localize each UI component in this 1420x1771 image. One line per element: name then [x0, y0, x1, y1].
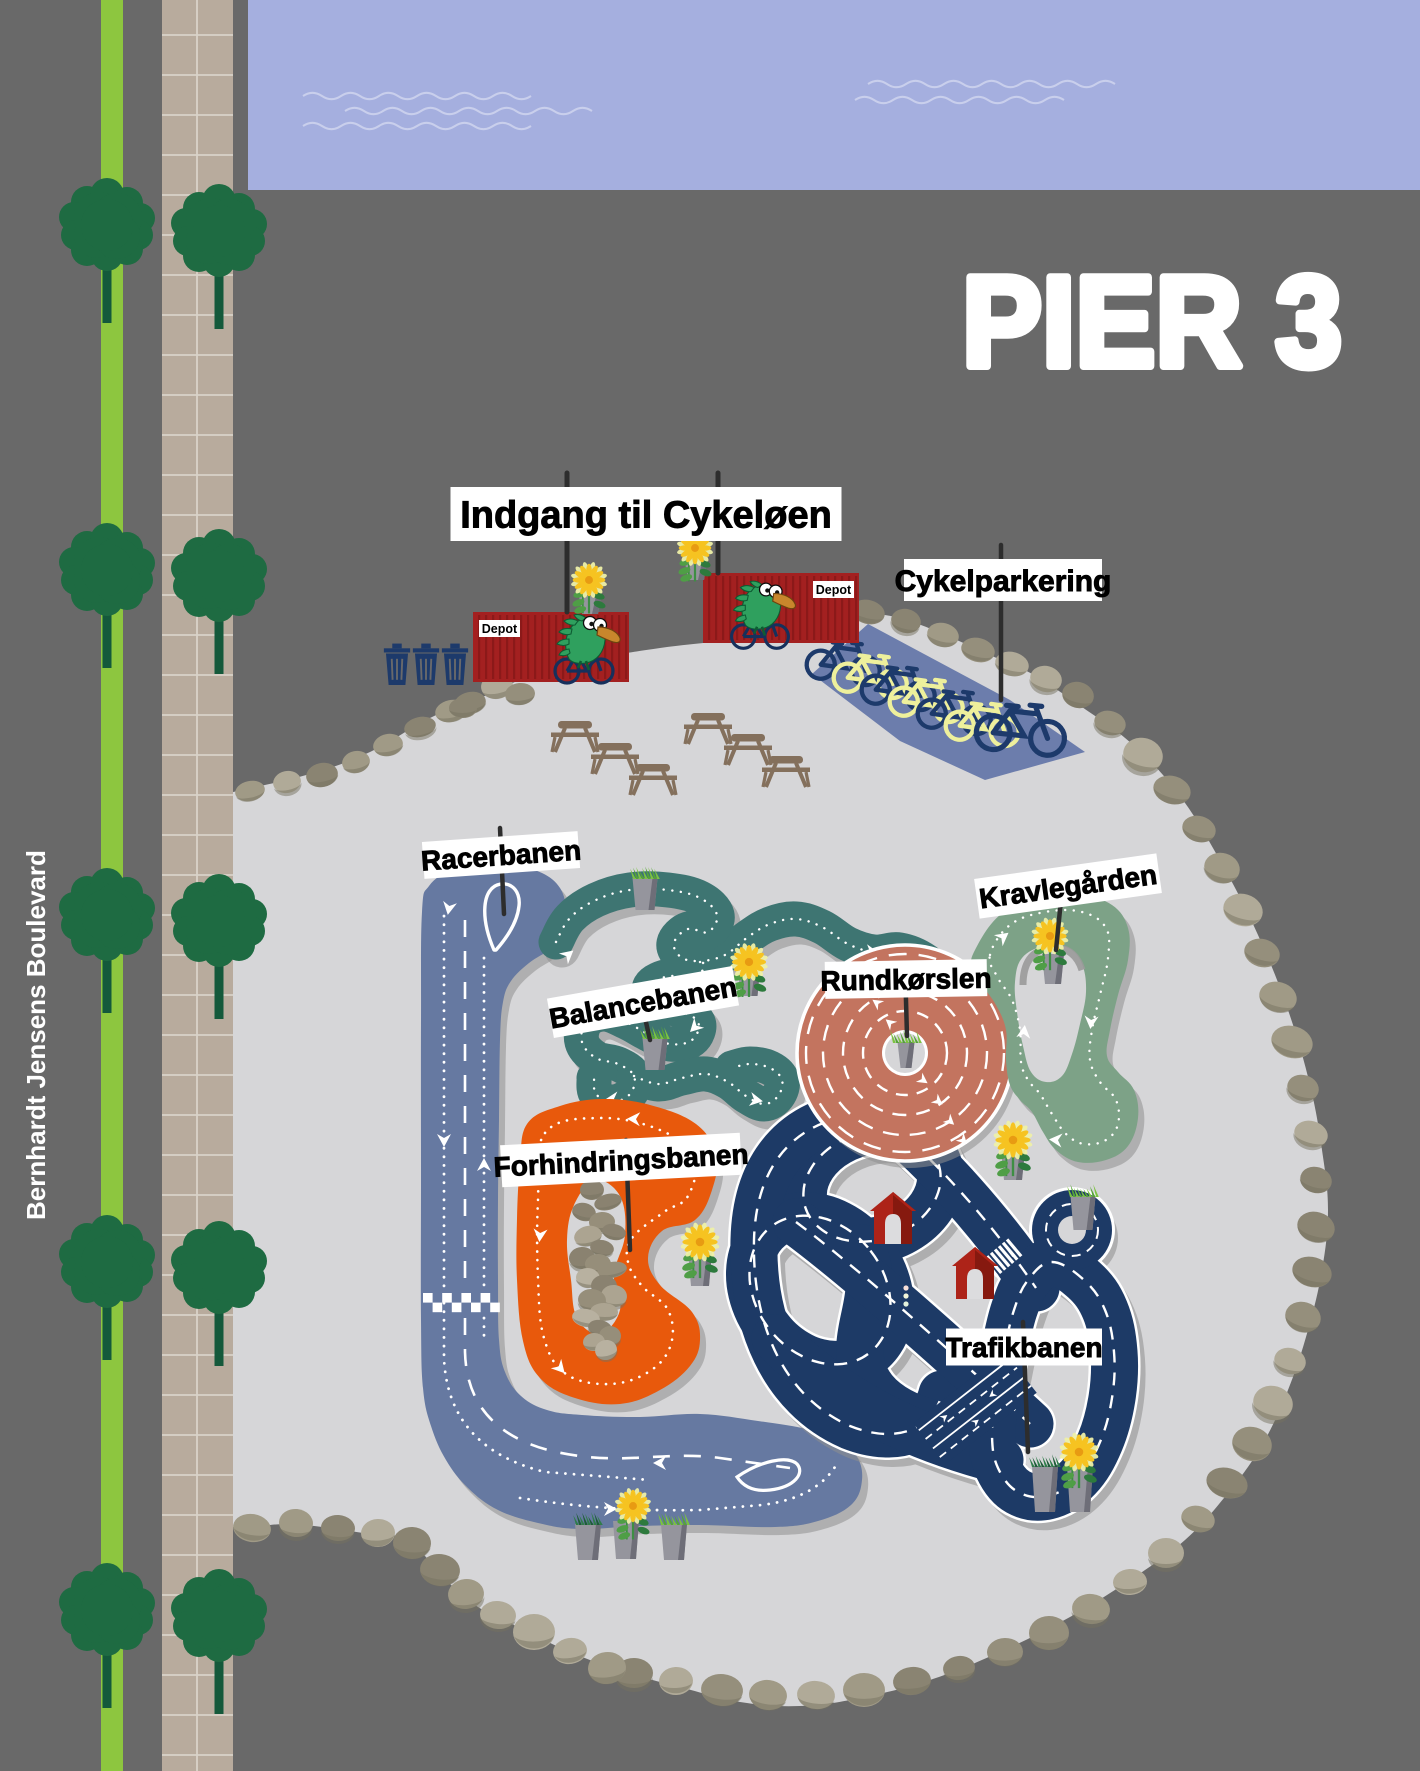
- svg-text:Depot: Depot: [482, 622, 518, 636]
- svg-text:Trafikbanen: Trafikbanen: [945, 1332, 1102, 1363]
- svg-text:Bernhardt Jensens Boulevard: Bernhardt Jensens Boulevard: [21, 850, 51, 1220]
- svg-text:PIER 3: PIER 3: [962, 250, 1342, 394]
- svg-text:Cykelparkering: Cykelparkering: [895, 565, 1112, 598]
- svg-text:Depot: Depot: [816, 583, 852, 597]
- svg-text:Indgang til Cykeløen: Indgang til Cykeløen: [460, 495, 832, 537]
- svg-text:Rundkørslen: Rundkørslen: [820, 963, 992, 997]
